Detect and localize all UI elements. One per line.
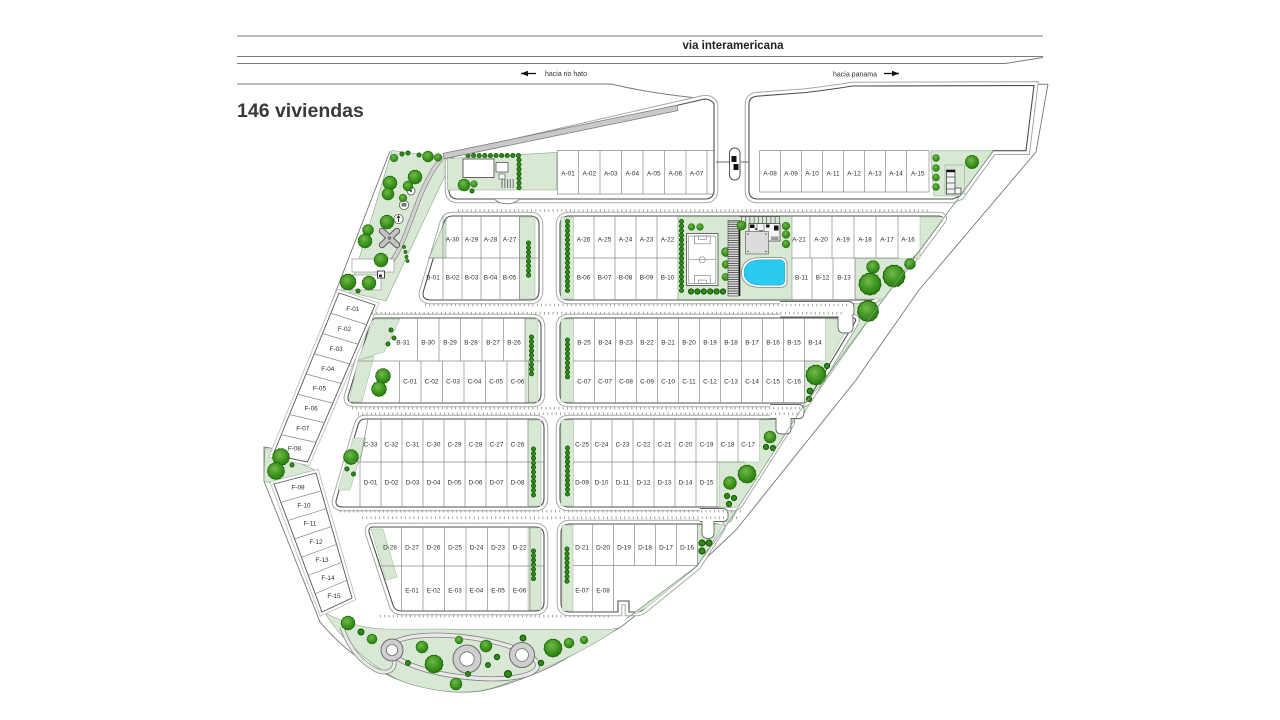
svg-text:A-25: A-25: [598, 237, 612, 244]
svg-text:E-08: E-08: [596, 588, 610, 595]
svg-text:E-04: E-04: [470, 588, 484, 595]
svg-text:D-05: D-05: [448, 480, 462, 487]
svg-text:D-21: D-21: [575, 545, 589, 552]
svg-text:F-05: F-05: [313, 386, 327, 393]
svg-text:D-20: D-20: [596, 545, 610, 552]
svg-text:F-04: F-04: [321, 366, 335, 373]
svg-text:A-03: A-03: [604, 171, 618, 178]
svg-text:D-16: D-16: [680, 545, 694, 552]
svg-text:B-21: B-21: [661, 340, 675, 347]
svg-text:B-07: B-07: [598, 275, 612, 282]
svg-text:C-04: C-04: [468, 379, 482, 386]
svg-text:B-18: B-18: [724, 340, 738, 347]
svg-text:D-08: D-08: [511, 480, 525, 487]
svg-text:A-19: A-19: [836, 237, 850, 244]
svg-text:B-13: B-13: [837, 275, 851, 282]
svg-text:A-10: A-10: [805, 171, 819, 178]
svg-text:C-32: C-32: [385, 442, 399, 449]
svg-text:A-17: A-17: [880, 237, 894, 244]
svg-text:A-18: A-18: [858, 237, 872, 244]
svg-text:C-25: C-25: [575, 442, 589, 449]
svg-text:D-28: D-28: [383, 545, 397, 552]
svg-text:A-16: A-16: [901, 237, 915, 244]
svg-text:C-23: C-23: [616, 442, 630, 449]
svg-text:A-20: A-20: [814, 237, 828, 244]
svg-text:B-02: B-02: [446, 275, 460, 282]
svg-text:C-12: C-12: [703, 379, 717, 386]
svg-text:A-15: A-15: [911, 171, 925, 178]
svg-text:C-22: C-22: [637, 442, 651, 449]
svg-text:B-24: B-24: [598, 340, 612, 347]
svg-text:D-07: D-07: [490, 480, 504, 487]
svg-text:B-14: B-14: [808, 340, 822, 347]
svg-text:A-06: A-06: [669, 171, 683, 178]
svg-text:C-20: C-20: [679, 442, 693, 449]
svg-text:C-24: C-24: [595, 442, 609, 449]
svg-text:B-05: B-05: [503, 275, 517, 282]
svg-text:D-01: D-01: [364, 480, 378, 487]
svg-text:E-05: E-05: [491, 588, 505, 595]
svg-text:A-04: A-04: [626, 171, 640, 178]
svg-text:D-11: D-11: [616, 480, 630, 487]
svg-text:D-19: D-19: [617, 545, 631, 552]
svg-text:B-04: B-04: [484, 275, 498, 282]
svg-text:C-02: C-02: [425, 379, 439, 386]
svg-text:B-16: B-16: [766, 340, 780, 347]
svg-text:B-15: B-15: [787, 340, 801, 347]
svg-text:F-01: F-01: [346, 306, 360, 313]
svg-text:B-17: B-17: [745, 340, 759, 347]
svg-text:A-09: A-09: [784, 171, 798, 178]
svg-text:A-24: A-24: [619, 237, 633, 244]
svg-text:C-31: C-31: [406, 442, 420, 449]
svg-text:B-19: B-19: [703, 340, 717, 347]
svg-text:C-18: C-18: [721, 442, 735, 449]
svg-text:F-02: F-02: [338, 326, 352, 333]
svg-text:A-30: A-30: [446, 237, 460, 244]
svg-text:via interamericana: via interamericana: [682, 40, 784, 52]
svg-text:A-14: A-14: [889, 171, 903, 178]
svg-text:146 viviendas: 146 viviendas: [237, 100, 364, 122]
svg-text:B-01: B-01: [426, 275, 440, 282]
svg-text:C-07: C-07: [598, 379, 612, 386]
svg-text:A-08: A-08: [763, 171, 777, 178]
svg-text:C-03: C-03: [446, 379, 460, 386]
svg-text:C-05: C-05: [489, 379, 503, 386]
svg-text:D-13: D-13: [658, 480, 672, 487]
svg-text:E-06: E-06: [513, 588, 527, 595]
svg-text:hacia panama: hacia panama: [833, 72, 877, 79]
svg-text:D-24: D-24: [470, 545, 484, 552]
svg-text:E-01: E-01: [405, 588, 419, 595]
svg-text:A-28: A-28: [484, 237, 498, 244]
svg-text:E-02: E-02: [427, 588, 441, 595]
svg-text:D-02: D-02: [385, 480, 399, 487]
svg-text:B-30: B-30: [421, 340, 435, 347]
svg-text:B-26: B-26: [507, 340, 521, 347]
svg-text:C-26: C-26: [511, 442, 525, 449]
svg-text:B-09: B-09: [640, 275, 654, 282]
svg-text:D-12: D-12: [637, 480, 651, 487]
svg-text:A-13: A-13: [868, 171, 882, 178]
svg-text:B-22: B-22: [640, 340, 654, 347]
svg-text:B-11: B-11: [795, 275, 808, 282]
svg-text:B-27: B-27: [486, 340, 500, 347]
svg-text:F-13: F-13: [315, 557, 329, 564]
svg-text:A-23: A-23: [640, 237, 654, 244]
svg-text:C-07: C-07: [577, 379, 591, 386]
svg-text:F-10: F-10: [297, 503, 311, 510]
svg-text:C-01: C-01: [403, 379, 417, 386]
svg-text:B-03: B-03: [465, 275, 479, 282]
svg-text:C-19: C-19: [700, 442, 714, 449]
svg-text:A-21: A-21: [792, 237, 806, 244]
svg-text:A-02: A-02: [583, 171, 597, 178]
svg-text:B-25: B-25: [577, 340, 591, 347]
svg-text:D-04: D-04: [427, 480, 441, 487]
svg-text:F-09: F-09: [291, 485, 305, 492]
svg-text:D-23: D-23: [491, 545, 505, 552]
svg-text:F-07: F-07: [296, 426, 310, 433]
svg-text:C-29: C-29: [448, 442, 462, 449]
svg-text:A-05: A-05: [647, 171, 661, 178]
svg-text:C-15: C-15: [766, 379, 780, 386]
svg-text:hacia rio hato: hacia rio hato: [545, 71, 587, 78]
svg-text:F-11: F-11: [304, 521, 317, 528]
svg-text:B-23: B-23: [619, 340, 633, 347]
svg-text:F-15: F-15: [327, 593, 341, 600]
svg-text:D-25: D-25: [448, 545, 462, 552]
svg-text:A-29: A-29: [465, 237, 479, 244]
svg-text:C-08: C-08: [619, 379, 633, 386]
svg-text:C-13: C-13: [724, 379, 738, 386]
svg-text:C-11: C-11: [682, 379, 696, 386]
svg-text:D-15: D-15: [700, 480, 714, 487]
svg-text:D-06: D-06: [469, 480, 483, 487]
svg-text:D-22: D-22: [513, 545, 527, 552]
svg-text:D-03: D-03: [406, 480, 420, 487]
svg-text:D-18: D-18: [638, 545, 652, 552]
svg-text:A-01: A-01: [561, 171, 575, 178]
svg-text:B-06: B-06: [577, 275, 591, 282]
svg-text:B-28: B-28: [464, 340, 478, 347]
svg-text:C-14: C-14: [745, 379, 759, 386]
svg-text:B-12: B-12: [816, 275, 830, 282]
svg-text:C-06: C-06: [511, 379, 525, 386]
svg-text:A-12: A-12: [847, 171, 861, 178]
svg-text:B-10: B-10: [661, 275, 675, 282]
svg-text:A-07: A-07: [690, 171, 704, 178]
svg-text:D-27: D-27: [405, 545, 419, 552]
svg-text:F-06: F-06: [305, 406, 319, 413]
svg-text:B-20: B-20: [682, 340, 696, 347]
svg-text:A-11: A-11: [826, 171, 839, 178]
svg-text:E-03: E-03: [448, 588, 462, 595]
svg-text:B-08: B-08: [619, 275, 633, 282]
svg-text:C-10: C-10: [661, 379, 675, 386]
svg-text:B-31: B-31: [396, 340, 410, 347]
svg-text:F-12: F-12: [309, 539, 323, 546]
svg-text:C-30: C-30: [427, 442, 441, 449]
svg-text:C-09: C-09: [640, 379, 654, 386]
svg-text:C-33: C-33: [364, 442, 378, 449]
svg-text:C-21: C-21: [658, 442, 672, 449]
svg-text:A-22: A-22: [661, 237, 675, 244]
svg-text:D-10: D-10: [595, 480, 609, 487]
svg-text:A-26: A-26: [577, 237, 591, 244]
svg-text:A-27: A-27: [503, 237, 517, 244]
svg-text:F-14: F-14: [321, 575, 335, 582]
svg-text:C-16: C-16: [787, 379, 801, 386]
svg-text:D-09: D-09: [575, 480, 589, 487]
svg-text:F-03: F-03: [330, 346, 344, 353]
svg-text:C-17: C-17: [741, 442, 755, 449]
svg-text:C-28: C-28: [469, 442, 483, 449]
svg-text:D-26: D-26: [427, 545, 441, 552]
svg-text:E-07: E-07: [575, 588, 589, 595]
svg-text:C-27: C-27: [490, 442, 504, 449]
svg-text:F-08: F-08: [288, 446, 302, 453]
svg-text:B-29: B-29: [443, 340, 457, 347]
svg-text:D-17: D-17: [659, 545, 673, 552]
svg-text:D-14: D-14: [679, 480, 693, 487]
